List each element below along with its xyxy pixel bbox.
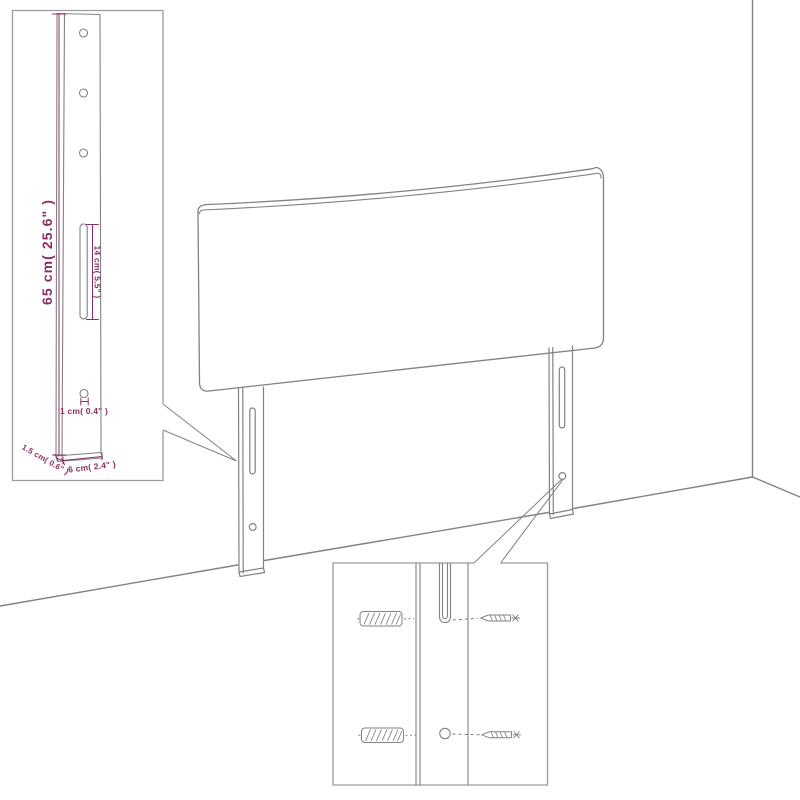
assembly-diagram [0,0,800,800]
right-leg-slot [559,367,564,428]
dimension-label-slot-length: 14 cm( 5.5" ) [93,246,102,299]
diagram-canvas: 65 cm( 25.6" ) 14 cm( 5.5" ) 1 cm( 0.4" … [0,0,800,800]
floor-line-right [753,477,800,497]
panel-outline [198,168,604,391]
dimension-label-leg-height: 65 cm( 25.6" ) [40,199,54,305]
headboard-left-leg [239,387,265,577]
inset-mounting-hardware [333,563,548,785]
left-leg-outline [239,387,265,577]
callout-to-leg-inset [163,404,237,461]
right-leg-hole [559,473,566,480]
headboard-panel [198,168,604,391]
left-leg-hole [249,524,256,531]
inset-mounting-box-border [333,563,548,785]
left-leg-slot [250,408,255,474]
dimension-label-hole-diameter: 1 cm( 0.4" ) [60,407,108,416]
